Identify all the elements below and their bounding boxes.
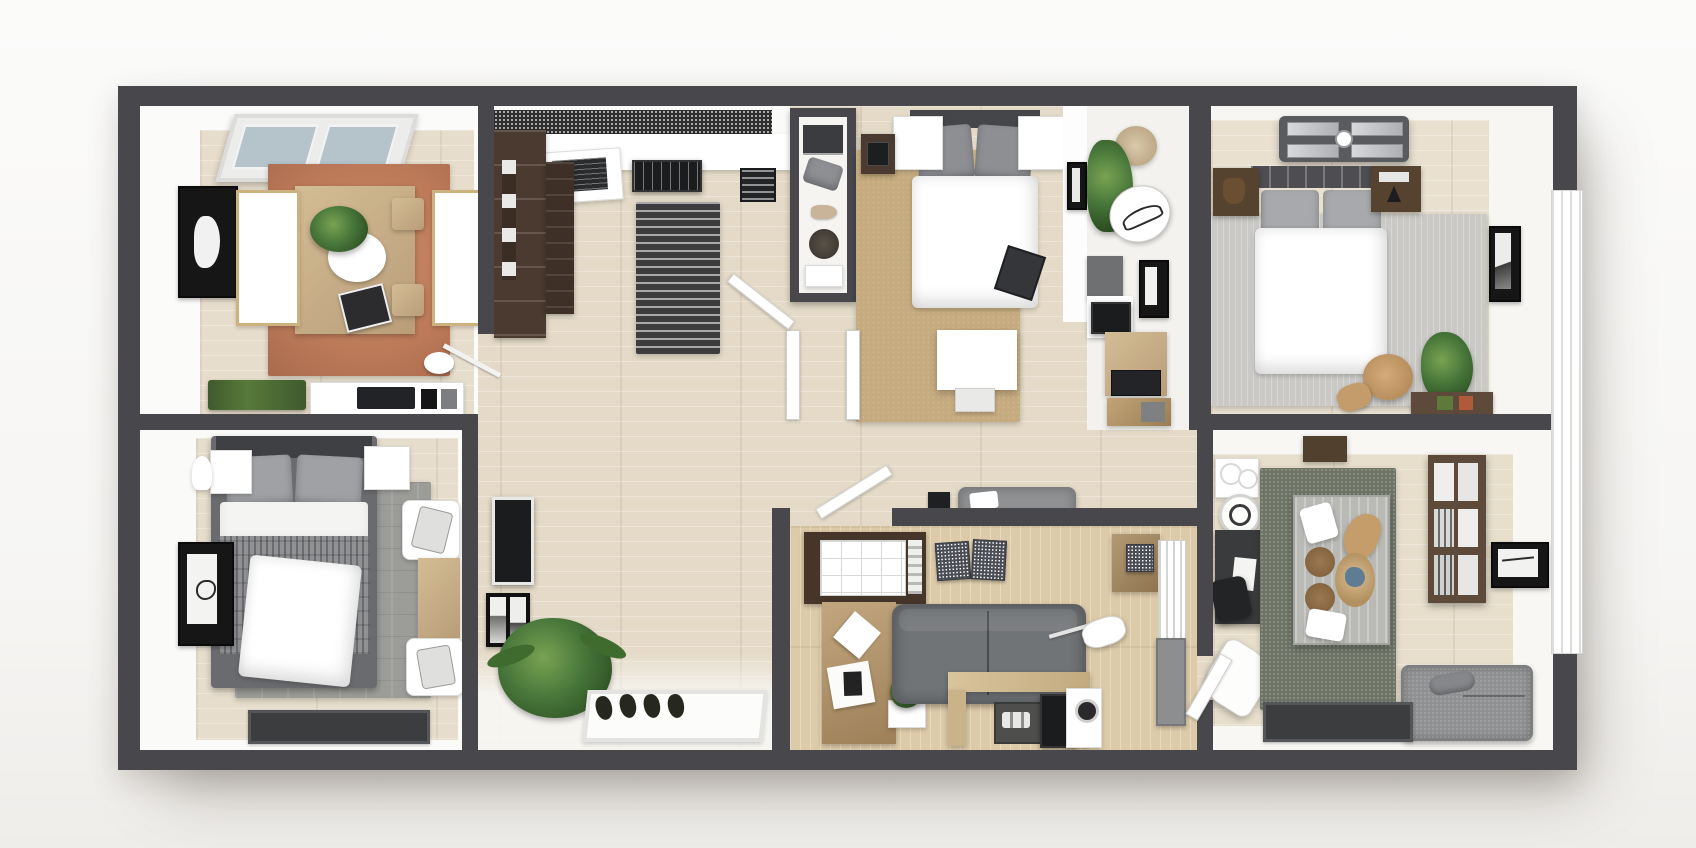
nightstand-left	[893, 116, 943, 170]
cooktop	[632, 160, 702, 192]
nook-wall-strip	[1063, 106, 1087, 322]
room-kids	[1213, 430, 1553, 750]
wall-exterior-bottom	[118, 750, 1577, 770]
nightstand-bag	[1223, 178, 1245, 204]
living-shelf-unit	[804, 532, 926, 604]
b1-lamp	[192, 456, 212, 490]
duvet	[1255, 228, 1387, 374]
sketch-line	[1120, 200, 1165, 232]
room-kitchen	[494, 106, 790, 356]
fan-blade	[1287, 144, 1339, 158]
kids-wall-art	[1491, 542, 1549, 588]
fan-hub	[1337, 132, 1351, 146]
kids-bench	[1401, 665, 1533, 741]
speaker-box	[421, 389, 437, 409]
wall-dining-kitchen	[478, 106, 494, 334]
shoe-pair	[593, 694, 614, 721]
pinned-paper	[833, 611, 881, 659]
wall-exterior-right-top	[1553, 86, 1577, 190]
books-row	[908, 540, 922, 594]
art-abstract-shape	[194, 216, 220, 268]
utility-box	[1126, 544, 1154, 572]
small-dresser	[1303, 436, 1347, 462]
coffee-machine	[867, 142, 889, 166]
white-pillow	[1299, 501, 1340, 544]
room-bedroom-2	[856, 106, 1063, 430]
patterned-box	[935, 541, 972, 581]
wall-utility-kids-upper	[1197, 430, 1213, 656]
bedroom2-door-post	[846, 330, 860, 420]
leaf-print-pillow	[416, 644, 456, 689]
shelf-book	[1459, 396, 1473, 410]
nightstand-right	[1018, 116, 1064, 170]
ceiling-fan	[1279, 116, 1409, 162]
closet-box	[803, 125, 843, 155]
room-living	[790, 526, 1197, 750]
reading-lamp	[1387, 186, 1401, 202]
shoe-pair	[642, 693, 663, 720]
bedroom2-door-post	[786, 330, 800, 420]
basket-blue-items	[1345, 567, 1365, 587]
bolster-pillow	[1428, 669, 1477, 697]
frame-photo	[490, 597, 506, 643]
table-tray-ring	[1229, 504, 1251, 526]
counter-stool	[740, 168, 776, 202]
folded-duvet	[238, 554, 362, 687]
wall-nook-master	[1189, 106, 1211, 422]
hall-tv	[492, 497, 534, 585]
fan-blade	[1287, 122, 1339, 136]
desk-stool	[955, 388, 995, 412]
side-desk	[418, 558, 460, 638]
wall-living-top	[892, 508, 1197, 526]
utility-gray-panel	[1156, 638, 1186, 726]
room-bedroom-1	[140, 430, 462, 750]
kids-floor-mat	[1263, 702, 1413, 742]
table-plant	[310, 206, 368, 252]
daybed-table	[1293, 495, 1390, 645]
white-pillow	[1305, 608, 1347, 642]
closet-shoe	[811, 205, 837, 219]
towel-roll	[1238, 469, 1258, 489]
nook-art-frame	[1139, 260, 1169, 318]
nook-tv	[1091, 302, 1131, 334]
art-inner	[1145, 267, 1157, 305]
dining-chair-top	[392, 198, 424, 230]
leaf-print-pillow	[410, 506, 453, 555]
nook-gray-cabinet	[1087, 256, 1123, 300]
towel-shelf	[1215, 458, 1259, 498]
bedroom1-floor-mat	[248, 710, 430, 744]
shelf-cell-books	[1434, 555, 1454, 595]
master-low-shelf	[1411, 392, 1493, 414]
shoe-pair	[618, 693, 639, 720]
shelf-plant-box	[1437, 396, 1453, 410]
planter-row	[208, 380, 306, 410]
shelf-gray-box	[1141, 402, 1165, 422]
wall-dining-bedroom1	[140, 414, 470, 430]
note-dark-blob	[843, 671, 862, 696]
console-basket	[994, 702, 1042, 744]
master-nightstand-right	[1371, 166, 1421, 212]
shoes-row	[596, 694, 692, 722]
pinned-note	[827, 661, 876, 710]
appliance-sideboard	[310, 382, 464, 416]
master-bed	[1255, 166, 1387, 374]
dining-bench-right	[432, 190, 482, 326]
nightstand-books	[1379, 172, 1409, 182]
microwave	[357, 387, 415, 409]
coffee-machine-unit	[1066, 688, 1102, 748]
floor-plan-render	[0, 0, 1696, 848]
bench-seam	[1463, 695, 1525, 697]
fan-blade	[1351, 144, 1403, 158]
storage-cube	[441, 389, 457, 409]
wall-exterior-right-bottom	[1553, 652, 1577, 770]
nook-lower-shelf	[1107, 398, 1171, 426]
master-nightstand-left	[1213, 168, 1259, 216]
pillow	[295, 454, 364, 507]
console-desk	[948, 672, 1090, 746]
art-inner	[1072, 168, 1080, 202]
room-closet	[790, 108, 856, 302]
kitchen-tall-cabinet	[494, 130, 546, 338]
wall-exterior-left	[118, 86, 140, 770]
master-wall-art	[1489, 226, 1521, 302]
closet-bin	[805, 265, 843, 287]
round-cushion	[1305, 547, 1335, 577]
graphic-chair-1	[402, 500, 460, 560]
right-wall-window	[1551, 190, 1583, 654]
b1-nightstand-left	[210, 450, 252, 494]
art-sketch	[1498, 549, 1538, 577]
bedroom1-wall-art	[178, 542, 234, 646]
bedroom2-desk	[937, 330, 1017, 390]
nook-desk	[1105, 332, 1167, 396]
headboard-slats	[1251, 166, 1391, 188]
graphic-chair-2	[406, 638, 464, 696]
floor-lamp-base	[424, 352, 454, 374]
pegboard-desk	[822, 602, 896, 744]
grid-cabinet-doors	[820, 540, 906, 596]
shelf-cell	[1458, 509, 1478, 547]
room-master-bedroom	[1211, 106, 1553, 414]
striped-wardrobe	[1158, 540, 1186, 646]
shelf-cell	[1434, 463, 1454, 501]
cabinet-items	[502, 160, 516, 280]
fan-blade	[1351, 122, 1403, 136]
console-leg	[948, 690, 966, 746]
shelf-cell	[1458, 555, 1478, 595]
cups	[1002, 712, 1030, 728]
closet-interior	[799, 117, 847, 293]
wall-exterior-top	[118, 86, 1577, 106]
art-photo	[1495, 233, 1511, 289]
wall-bookshelf	[1428, 455, 1486, 603]
b1-nightstand-right	[364, 446, 410, 490]
patterned-box	[971, 539, 1007, 581]
wall-master-kids	[1189, 414, 1553, 430]
wall-bedroom1-hall	[462, 414, 478, 750]
shelf-cell-books	[1434, 509, 1454, 547]
shelf-cell	[1458, 463, 1478, 501]
kitchen-runner-rug	[636, 202, 720, 354]
dining-wall-art	[178, 186, 238, 298]
dining-bench-left	[236, 190, 300, 326]
room-study-nook	[1087, 106, 1189, 430]
nook-microwave	[1111, 370, 1161, 396]
shoe-pair	[666, 693, 686, 719]
machine-dial	[1075, 699, 1099, 723]
closet-pillow	[802, 156, 844, 192]
dining-chair-bottom	[392, 284, 424, 316]
room-dining	[140, 106, 478, 414]
round-cushion	[1305, 583, 1335, 613]
nightstand-left-lower	[861, 134, 895, 174]
closet-basket	[809, 229, 839, 259]
nook-strip-art	[1067, 162, 1087, 210]
wall-hall-living	[772, 508, 790, 750]
sofa-back-cushion	[899, 609, 1077, 631]
rattan-basket-decor	[1335, 553, 1375, 607]
kitchen-cabinet-2	[546, 162, 574, 314]
